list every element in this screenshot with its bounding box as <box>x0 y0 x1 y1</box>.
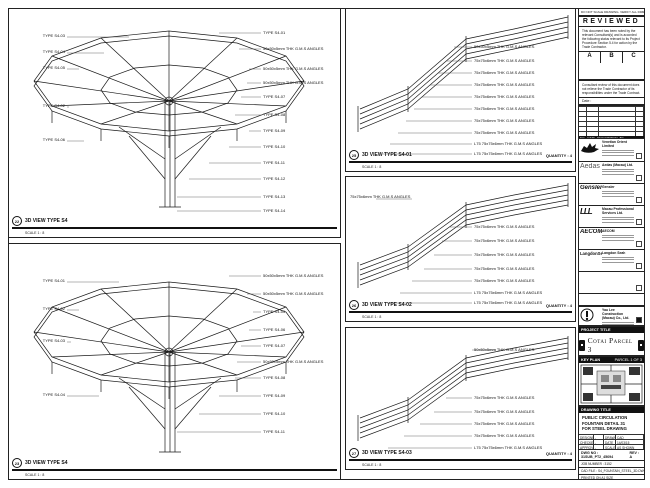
callout-label: TYPE S4-06 <box>19 137 65 142</box>
scale-label: SCALE <box>604 444 616 449</box>
consultant-name: AECOM <box>602 229 636 233</box>
mps-logo: LLL <box>580 207 602 216</box>
stamp-checkbox <box>636 153 642 159</box>
callout-label: 75x75x6mm THK G.M.S ANGLES <box>474 395 534 400</box>
main-contractor-block: Yau Lee Construction (Macau) Co., Ltd. <box>578 306 645 326</box>
radial-steel-structure-drawing <box>9 9 342 223</box>
viewport-title-bar: 25 3D VIEW TYPE S4-01 QUANTITY : 4 <box>349 150 572 163</box>
callout-label: TYPE S4-11 <box>263 429 285 434</box>
callout-label: TYPE S4-12 <box>263 176 285 181</box>
detail-reference-bubble: 26 <box>349 300 359 310</box>
consultant-name: Venetian Orient Limited <box>602 140 636 148</box>
stamp-checkbox <box>636 263 642 269</box>
quantity-note: QUANTITY : 4 <box>546 303 572 308</box>
callout-label: 75x75x6mm THK G.M.S ANGLES <box>474 118 534 123</box>
callout-label: 75x75x6mm THK G.M.S ANGLES <box>474 82 534 87</box>
langdon-seah-logo: LangdonSeah <box>580 251 602 256</box>
callout-label: 50x50x5mm THK G.M.S ANGLES <box>263 46 323 51</box>
drawing-title-line-3: FOR STEEL DRAWING <box>582 426 641 432</box>
quantity-note: QUANTITY : 4 <box>546 153 572 158</box>
reviewed-stamp-body: This document has been noted by the rele… <box>579 27 644 51</box>
sheet-size-row: PRINTED ON A1 SIZE <box>579 474 644 481</box>
stamp-option-a: A <box>579 52 601 63</box>
callout-label: 75x75x6mm THK G.M.S ANGLES <box>474 224 534 229</box>
drawing-sheet: TYPE S4-03 TYPE S4-04 TYPE S4-05 TYPE S4… <box>0 0 650 488</box>
viewport-title: 3D VIEW TYPE S4-01 <box>362 152 412 158</box>
callout-label: TYPE S4-10 <box>263 144 285 149</box>
viewport-3d-view-type-s4-bottom: TYPE S4-01 TYPE S4-02 TYPE S4-03 TYPE S4… <box>8 243 341 480</box>
scale-value: AS SHOWN <box>616 444 644 449</box>
stamp-checkbox <box>636 197 642 203</box>
callout-label: 75x75x6mm THK G.M.S ANGLES <box>474 130 534 135</box>
callout-label: 75x75x6mm THK G.M.S ANGLES <box>474 409 534 414</box>
viewport-title: 3D VIEW TYPE S4-03 <box>362 450 412 456</box>
callout-label: 50x50x5mm THK G.M.S ANGLES <box>263 291 323 296</box>
project-title-block: PROJECT TITLE Cotai Parcel 3 <box>578 326 645 356</box>
revision-rows <box>579 106 644 136</box>
consultant-langdon-seah: LangdonSeah Langdon Seah <box>579 249 644 271</box>
callout-label: TYPE S4-11 <box>263 160 285 165</box>
viewport-scale: SCALE 1 : 8 <box>362 165 381 169</box>
consultant-name: Macau Professional Services Ltd. <box>602 207 636 215</box>
viewport-title-bar: 26 3D VIEW TYPE S4-02 QUANTITY : 4 <box>349 300 572 313</box>
consultant-gensler: Gensler Gensler <box>579 183 644 205</box>
callout-label: TYPE S4-06 <box>263 327 285 332</box>
viewport-3d-view-type-s4-02: 75x75x6mm THK G.M.S ANGLES 75x75x6mm THK… <box>345 176 576 322</box>
project-name: Cotai Parcel 3 <box>588 336 636 354</box>
callout-label: TYPE S4-01 <box>263 30 285 35</box>
callout-label: TYPE S4-02 <box>19 103 65 108</box>
callout-label: 50x50x5mm THK G.M.S ANGLES <box>474 347 534 352</box>
stamp-checkbox <box>636 175 642 181</box>
callout-label: 75x75x6mm THK G.M.S ANGLES <box>474 106 534 111</box>
callout-label: 75x75x6mm THK G.M.S ANGLES <box>474 58 534 63</box>
viewport-scale: SCALE 1 : 8 <box>362 315 381 319</box>
callout-label: 75x75x6mm THK G.M.S ANGLES <box>474 252 534 257</box>
consultant-venetian: Venetian Orient Limited <box>579 139 644 161</box>
detail-reference-bubble: 23 <box>12 458 22 468</box>
approved-value: - <box>594 444 604 449</box>
aedas-logo: Aedas <box>580 163 602 170</box>
drawing-title-band-label: DRAWING TITLE <box>581 408 611 412</box>
callout-label: TYPE S4-03 <box>19 33 65 38</box>
stamp-disclaimer-box: Consultant review of this document does … <box>578 80 645 105</box>
project-band-label: PROJECT TITLE <box>581 328 611 332</box>
callout-label: 50x50x5mm THK G.M.S ANGLES <box>263 80 323 85</box>
stamp-checkbox-filled <box>636 317 642 323</box>
contractor-name: Yau Lee Construction (Macau) Co., Ltd. <box>602 308 636 320</box>
viewport-scale: SCALE 1 : 8 <box>25 473 44 477</box>
consultant-aedas: Aedas Aedas (Macau) Ltd. <box>579 161 644 183</box>
job-number-row: JOB NUMBER : 3152 <box>579 460 644 467</box>
callout-label: TYPE S4-09 <box>263 128 285 133</box>
key-plan-note: PARCEL 1 OF 3 <box>615 358 642 362</box>
viewport-scale: SCALE 1 : 8 <box>25 231 44 235</box>
key-plan-label: KEY PLAN <box>581 358 600 362</box>
callout-label: 75x75x6mm THK G.M.S ANGLES <box>474 421 534 426</box>
callout-label: 75x75x6mm THK G.M.S ANGLES <box>474 94 534 99</box>
callout-label: TYPE S4-05 <box>263 309 285 314</box>
consultant-name: Gensler <box>602 185 636 189</box>
dwg-no-value: 31SUB_PT2_45694 <box>581 455 613 459</box>
contractor-entry: Yau Lee Construction (Macau) Co., Ltd. <box>579 307 644 325</box>
angle-member-assembly-drawing <box>346 9 577 157</box>
key-plan-block: KEY PLAN PARCEL 1 OF 3 <box>578 356 645 406</box>
callout-label: TYPE S4-04 <box>19 392 65 397</box>
consultant-blocks: Venetian Orient Limited Aedas Aedas (Mac… <box>578 138 645 306</box>
cad-file-row: CAD FILE : S4_FOUNTAIN_STEEL_3D.DWG <box>579 467 644 474</box>
callout-label: 75x75x6mm THK G.M.S ANGLES <box>474 433 534 438</box>
gensler-logo: Gensler <box>580 185 602 191</box>
viewport-title: 3D VIEW TYPE S4-02 <box>362 302 412 308</box>
reviewed-stamp-title: REVIEWED <box>579 17 644 27</box>
viewport-3d-view-type-s4-01: 50x50x5mm THK G.M.S ANGLES 75x75x6mm THK… <box>345 8 576 172</box>
callout-label: 50x50x5mm THK G.M.S ANGLES <box>263 273 323 278</box>
stamp-checkbox <box>636 285 642 291</box>
viewport-title: 3D VIEW TYPE S4 <box>25 460 68 466</box>
detail-reference-bubble: 25 <box>349 150 359 160</box>
consultant-mps: LLL Macau Professional Services Ltd. <box>579 205 644 227</box>
viewport-3d-view-type-s4-03: 50x50x5mm THK G.M.S ANGLES 75x75x6mm THK… <box>345 327 576 470</box>
callout-label: TYPE S4-03 <box>19 338 65 343</box>
callout-label: 50x50x5mm THK G.M.S ANGLES <box>263 66 323 71</box>
stamp-status-options: A B C <box>579 51 644 63</box>
callout-label: 75x75x6mm THK G.M.S ANGLES <box>474 278 534 283</box>
project-emblem-right <box>638 340 644 351</box>
callout-label: 75x75x6mm THK G.M.S ANGLES <box>474 266 534 271</box>
callout-label: 50x50x5mm THK G.M.S ANGLES <box>263 359 323 364</box>
callout-label: TYPE S4-04 <box>19 49 65 54</box>
callout-label: TYPE S4-10 <box>263 411 285 416</box>
stamp-checkbox <box>636 219 642 225</box>
detail-reference-bubble: 22 <box>12 216 22 226</box>
callout-label: TYPE S4-07 <box>263 94 285 99</box>
stamp-checkbox <box>636 241 642 247</box>
drawing-title-block: DRAWING TITLE PUBLIC CIRCULATION FOUNTAI… <box>578 406 645 480</box>
viewport-title-bar: 23 3D VIEW TYPE S4 <box>12 458 337 471</box>
stamp-option-b: B <box>601 52 623 63</box>
contractor-logo <box>580 308 602 322</box>
angle-member-assembly-drawing <box>346 328 577 455</box>
viewport-title: 3D VIEW TYPE S4 <box>25 218 68 224</box>
approval-grid: DESIGNED - DRAWN CAD CHECKED - DATE 14/0… <box>579 434 644 449</box>
callout-label: TYPE S4-13 <box>263 194 285 199</box>
callout-label: 75x75x6mm THK G.M.S ANGLES <box>474 70 534 75</box>
drawing-title: PUBLIC CIRCULATION FOUNTAIN DETAIL 31 FO… <box>579 413 644 434</box>
quantity-note: QUANTITY : 4 <box>546 451 572 456</box>
consultant-aecom: AECOM AECOM <box>579 227 644 249</box>
callout-label: TYPE S4-01 <box>19 278 65 283</box>
stamp-date-line: Date : <box>579 97 644 104</box>
consultant-name: Langdon Seah <box>602 251 636 255</box>
callout-label: TYPE S4-08 <box>263 375 285 380</box>
consultant-empty-1 <box>579 271 644 293</box>
callout-label: L75 75x75x6mm THK G.M.S ANGLES <box>474 290 542 295</box>
callout-label: 50x50x5mm THK G.M.S ANGLES <box>474 44 534 49</box>
viewport-3d-view-type-s4-top: TYPE S4-03 TYPE S4-04 TYPE S4-05 TYPE S4… <box>8 8 341 238</box>
callout-label: TYPE S4-05 <box>19 65 65 70</box>
approved-label: APPROVED <box>579 444 594 449</box>
general-notes-strip: DO NOT SCALE DRAWING. VERIFY ALL DIMENSI… <box>578 8 645 16</box>
viewport-title-bar: 27 3D VIEW TYPE S4-03 QUANTITY : 4 <box>349 448 572 461</box>
viewport-title-bar: 22 3D VIEW TYPE S4 <box>12 216 337 229</box>
dwg-number-row: DWG NO : 31SUB_PT2_45694 REV : A <box>579 449 644 460</box>
venetian-lion-logo <box>580 140 602 153</box>
callout-label: TYPE S4-07 <box>263 343 285 348</box>
callout-label: 75x75x6mm THK G.M.S ANGLES <box>474 238 534 243</box>
key-plan-drawing <box>579 363 644 405</box>
project-name-row: Cotai Parcel 3 <box>579 333 644 357</box>
callout-label: 75x75x6mm THK G.M.S ANGLES <box>350 194 410 199</box>
callout-label: TYPE S4-09 <box>263 393 285 398</box>
callout-label: TYPE S4-14 <box>263 208 285 213</box>
reviewed-stamp: REVIEWED This document has been noted by… <box>578 16 645 80</box>
revision-table: NO. DATE DESCRIPTION BY <box>578 105 645 138</box>
detail-reference-bubble: 27 <box>349 448 359 458</box>
callout-label: TYPE S4-08 <box>263 112 285 117</box>
callout-label: L75 75x75x6mm THK G.M.S ANGLES <box>474 141 542 146</box>
project-emblem-left <box>579 340 585 351</box>
viewport-scale: SCALE 1 : 8 <box>362 463 381 467</box>
stamp-disclaimer: Consultant review of this document does … <box>579 81 644 97</box>
callout-label: TYPE S4-02 <box>19 306 65 311</box>
rev-value: A <box>629 455 632 459</box>
aecom-logo: AECOM <box>580 229 602 235</box>
do-not-scale-note: DO NOT SCALE DRAWING. VERIFY ALL DIMENSI… <box>579 9 644 15</box>
stamp-option-c: C <box>623 52 644 63</box>
consultant-name: Aedas (Macau) Ltd. <box>602 163 636 167</box>
title-block-column: DO NOT SCALE DRAWING. VERIFY ALL DIMENSI… <box>578 8 645 480</box>
